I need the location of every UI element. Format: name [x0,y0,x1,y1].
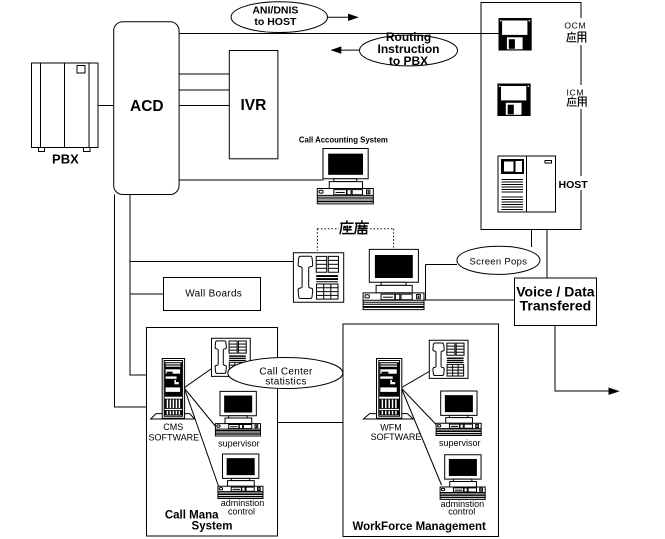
svg-text:SOFTWARE: SOFTWARE [371,432,422,442]
svg-text:System: System [192,521,233,533]
svg-text:SOFTWARE: SOFTWARE [148,433,199,443]
svg-text:supervisor: supervisor [439,438,481,448]
svg-text:IVR: IVR [240,97,266,114]
svg-text:Transfered: Transfered [520,298,592,314]
svg-text:Wall Boards: Wall Boards [185,289,242,300]
svg-text:Screen Pops: Screen Pops [470,257,528,268]
svg-text:Call Accounting System: Call Accounting System [299,135,388,144]
svg-text:CMS: CMS [163,422,183,432]
svg-text:to HOST: to HOST [254,16,297,28]
svg-text:supervisor: supervisor [218,439,260,449]
svg-text:WFM: WFM [380,423,402,433]
svg-text:PBX: PBX [52,152,79,167]
svg-text:control: control [448,507,475,517]
svg-text:OCM: OCM [564,20,586,30]
svg-text:ICM: ICM [566,87,584,97]
svg-text:WorkForce Management: WorkForce Management [353,521,487,533]
svg-text:HOST: HOST [559,179,589,191]
svg-text:ANI/DNIS: ANI/DNIS [252,5,298,17]
svg-text:to PBX: to PBX [389,54,428,68]
svg-text:statistics: statistics [265,377,306,388]
svg-text:ACD: ACD [130,98,164,115]
svg-text:control: control [228,507,255,517]
